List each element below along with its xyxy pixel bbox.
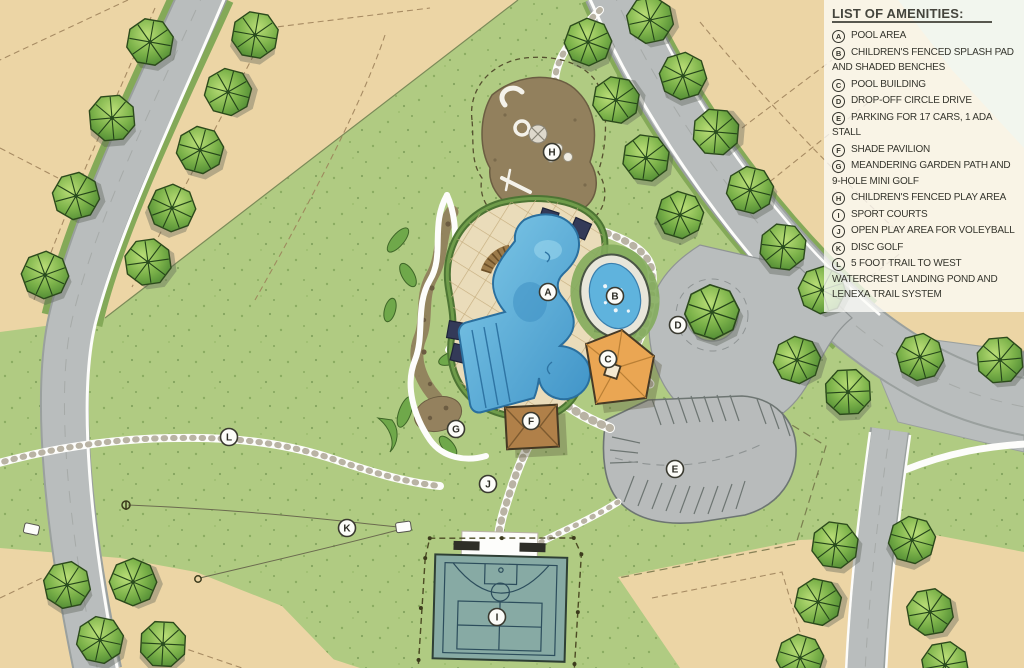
- svg-text:E: E: [672, 465, 679, 476]
- legend-item: CPOOL BUILDING: [832, 77, 1018, 93]
- site-plan: A B C D E F G H I J: [0, 0, 1024, 668]
- legend-item-label: MEANDERING GARDEN PATH AND 9-HOLE MINI G…: [832, 160, 1010, 187]
- svg-text:K: K: [343, 524, 351, 535]
- svg-text:D: D: [674, 321, 681, 332]
- legend-item: KDISC GOLF: [832, 240, 1018, 256]
- svg-text:H: H: [548, 148, 555, 159]
- svg-text:F: F: [528, 417, 534, 428]
- legend-item-label: OPEN PLAY AREA FOR VOLEYBALL: [851, 225, 1015, 236]
- legend-item: HCHILDREN'S FENCED PLAY AREA: [832, 190, 1018, 206]
- legend-item-label: PARKING FOR 17 CARS, 1 ADA STALL: [832, 112, 992, 139]
- legend-items: APOOL AREA BCHILDREN'S FENCED SPLASH PAD…: [832, 28, 1018, 303]
- marker-sport-courts: I: [489, 609, 506, 626]
- svg-text:J: J: [485, 480, 491, 491]
- legend-item: JOPEN PLAY AREA FOR VOLEYBALL: [832, 223, 1018, 239]
- legend-item-label: 5 FOOT TRAIL TO WEST WATERCREST LANDING …: [832, 258, 998, 300]
- marker-disc-golf: K: [339, 520, 356, 537]
- marker-drop-off: D: [670, 317, 687, 334]
- amenities-legend: LIST OF AMENITIES: APOOL AREA BCHILDREN'…: [824, 0, 1024, 312]
- legend-letter-badge: D: [832, 95, 845, 108]
- legend-letter-badge: B: [832, 47, 845, 60]
- svg-text:B: B: [611, 292, 618, 303]
- svg-text:L: L: [226, 433, 232, 444]
- legend-letter-badge: L: [832, 258, 845, 271]
- marker-pool-building: C: [600, 351, 617, 368]
- svg-text:G: G: [452, 425, 460, 436]
- legend-item-label: CHILDREN'S FENCED SPLASH PAD AND SHADED …: [832, 47, 1014, 74]
- marker-pool-area: A: [540, 284, 557, 301]
- legend-letter-badge: K: [832, 242, 845, 255]
- legend-letter-badge: E: [832, 112, 845, 125]
- legend-item-label: DISC GOLF: [851, 242, 903, 253]
- legend-letter-badge: I: [832, 209, 845, 222]
- marker-splash-pad: B: [607, 288, 624, 305]
- legend-item-label: DROP-OFF CIRCLE DRIVE: [851, 95, 972, 106]
- legend-item-label: SHADE PAVILION: [851, 144, 930, 155]
- marker-open-play: J: [480, 476, 497, 493]
- svg-text:A: A: [544, 288, 551, 299]
- legend-title: LIST OF AMENITIES:: [832, 6, 992, 23]
- legend-letter-badge: A: [832, 30, 845, 43]
- legend-item: ISPORT COURTS: [832, 207, 1018, 223]
- legend-item: FSHADE PAVILION: [832, 142, 1018, 158]
- legend-item: GMEANDERING GARDEN PATH AND 9-HOLE MINI …: [832, 158, 1018, 189]
- legend-item-label: POOL AREA: [851, 30, 906, 41]
- legend-letter-badge: H: [832, 192, 845, 205]
- marker-play-area: H: [544, 144, 561, 161]
- legend-item-label: POOL BUILDING: [851, 79, 926, 90]
- svg-text:I: I: [496, 613, 499, 624]
- legend-item: EPARKING FOR 17 CARS, 1 ADA STALL: [832, 110, 1018, 141]
- legend-item-label: SPORT COURTS: [851, 209, 928, 220]
- parking-lot: [603, 395, 796, 523]
- marker-shade-pavilion: F: [523, 413, 540, 430]
- legend-letter-badge: F: [832, 144, 845, 157]
- legend-item-label: CHILDREN'S FENCED PLAY AREA: [851, 192, 1006, 203]
- legend-item: DDROP-OFF CIRCLE DRIVE: [832, 93, 1018, 109]
- legend-item: APOOL AREA: [832, 28, 1018, 44]
- legend-letter-badge: G: [832, 160, 845, 173]
- marker-parking: E: [667, 461, 684, 478]
- svg-text:C: C: [604, 355, 611, 366]
- marker-garden-path: G: [448, 421, 465, 438]
- legend-letter-badge: J: [832, 225, 845, 238]
- legend-letter-badge: C: [832, 79, 845, 92]
- legend-item: BCHILDREN'S FENCED SPLASH PAD AND SHADED…: [832, 45, 1018, 76]
- marker-trail: L: [221, 429, 238, 446]
- legend-item: L5 FOOT TRAIL TO WEST WATERCREST LANDING…: [832, 256, 1018, 303]
